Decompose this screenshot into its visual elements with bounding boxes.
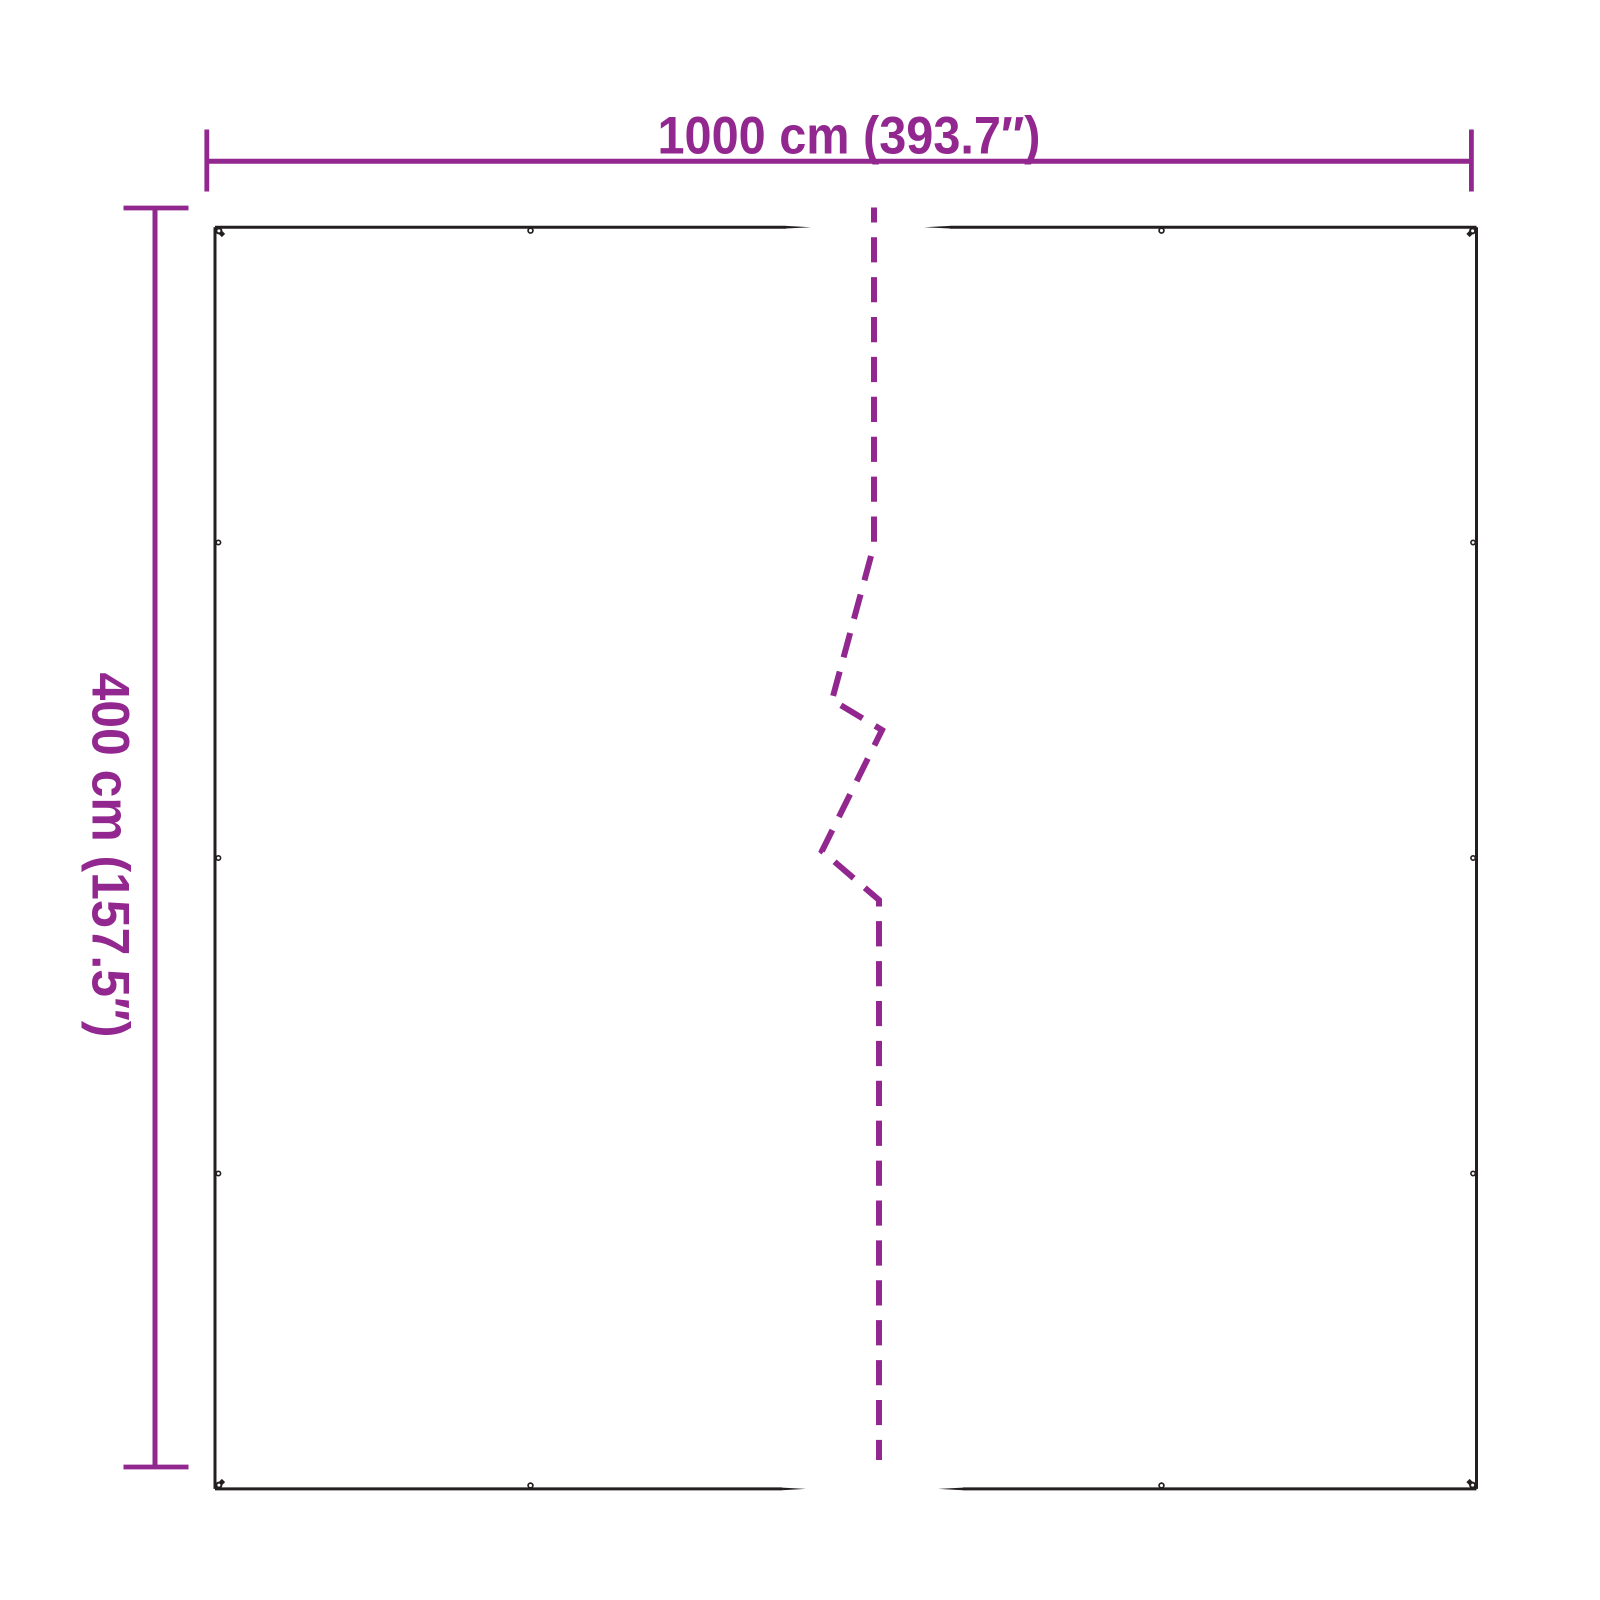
- svg-text:1000 cm (393.7″): 1000 cm (393.7″): [658, 106, 1041, 165]
- svg-text:400 cm (157.5″): 400 cm (157.5″): [81, 673, 140, 1038]
